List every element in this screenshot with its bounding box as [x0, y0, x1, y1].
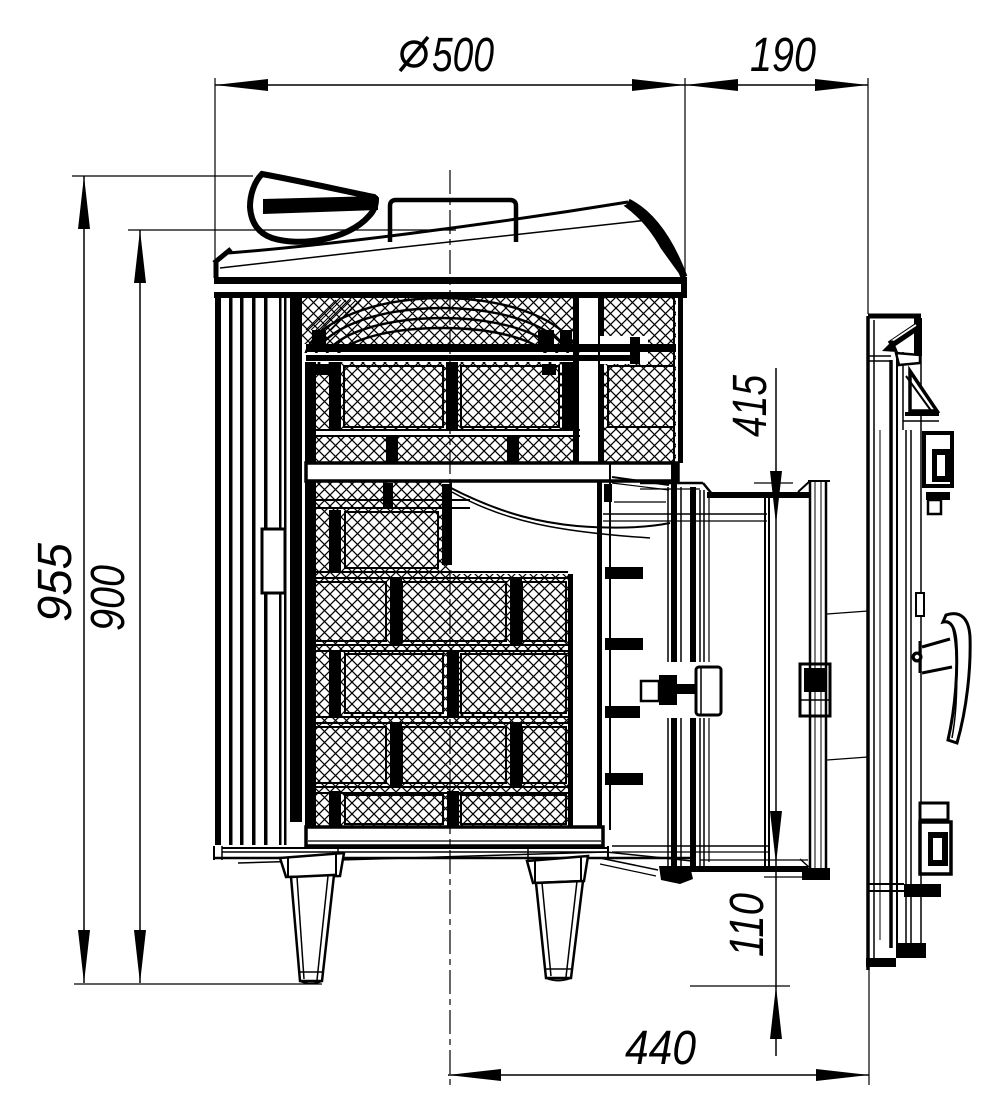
svg-text:900: 900 — [82, 565, 135, 631]
svg-text:440: 440 — [625, 1022, 696, 1075]
svg-text:955: 955 — [29, 543, 82, 622]
svg-text:415: 415 — [724, 375, 777, 437]
svg-text:110: 110 — [721, 893, 774, 957]
svg-text:500: 500 — [432, 29, 494, 82]
svg-text:190: 190 — [750, 29, 816, 82]
